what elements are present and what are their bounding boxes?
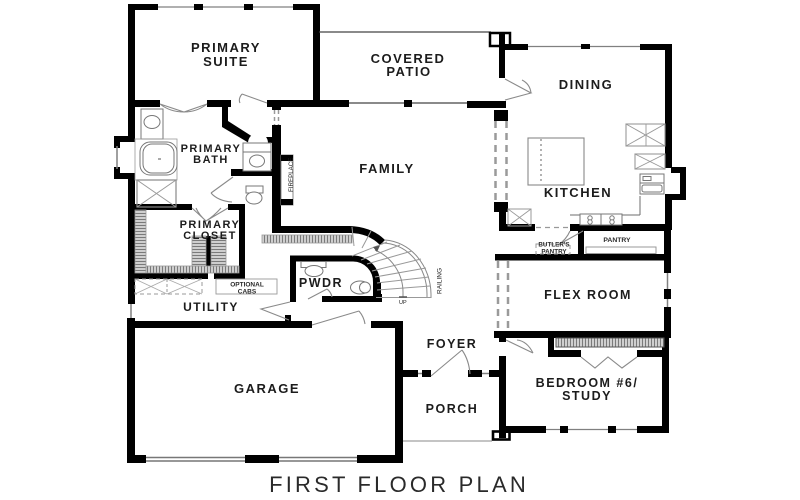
- svg-text:UTILITY: UTILITY: [183, 300, 239, 314]
- svg-text:BEDROOM #6/: BEDROOM #6/: [536, 376, 639, 390]
- svg-text:OPTIONAL: OPTIONAL: [230, 282, 264, 289]
- svg-text:PANTRY: PANTRY: [603, 237, 631, 244]
- svg-text:FIREPLACE: FIREPLACE: [288, 158, 295, 192]
- svg-text:UP: UP: [399, 300, 407, 306]
- svg-text:PWDR: PWDR: [299, 276, 343, 290]
- svg-text:FLEX ROOM: FLEX ROOM: [544, 288, 632, 302]
- svg-text:STUDY: STUDY: [562, 389, 612, 403]
- svg-text:CABS: CABS: [238, 289, 257, 296]
- svg-text:PATIO: PATIO: [386, 64, 431, 79]
- svg-text:CLOSET: CLOSET: [183, 230, 237, 242]
- svg-text:KITCHEN: KITCHEN: [544, 185, 612, 200]
- svg-text:DINING: DINING: [559, 77, 614, 92]
- svg-text:FAMILY: FAMILY: [359, 161, 414, 176]
- svg-text:FIRST FLOOR PLAN: FIRST FLOOR PLAN: [269, 472, 529, 497]
- svg-text:PANTRY: PANTRY: [541, 249, 567, 256]
- svg-text:GARAGE: GARAGE: [234, 381, 300, 396]
- svg-text:RAILING: RAILING: [437, 268, 444, 294]
- svg-text:BATH: BATH: [193, 154, 229, 166]
- svg-text:BUTLER'S: BUTLER'S: [538, 242, 569, 249]
- svg-text:FOYER: FOYER: [427, 337, 478, 351]
- svg-text:PORCH: PORCH: [426, 402, 479, 416]
- svg-text:PRIMARY: PRIMARY: [191, 40, 261, 55]
- svg-text:SUITE: SUITE: [203, 54, 249, 69]
